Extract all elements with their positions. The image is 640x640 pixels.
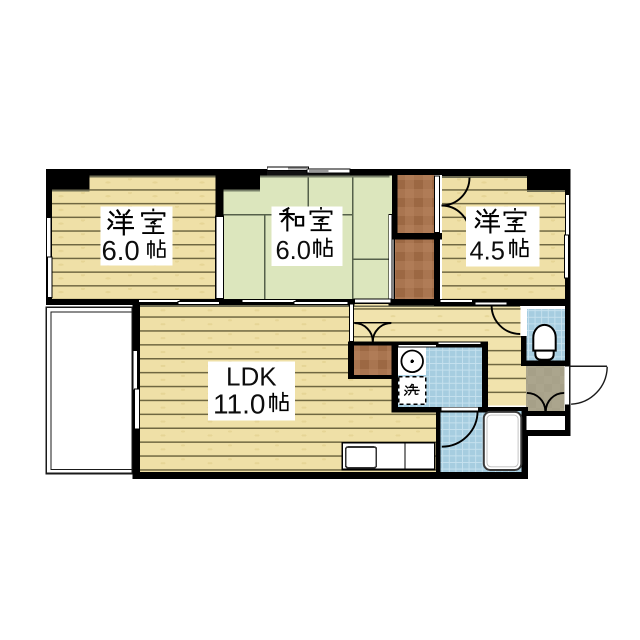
svg-text:4.5: 4.5 [470,238,505,266]
svg-text:LDK: LDK [226,361,277,391]
svg-text:6.0: 6.0 [276,237,311,265]
svg-text:11.0: 11.0 [213,388,265,419]
svg-text:6.0: 6.0 [102,235,140,266]
